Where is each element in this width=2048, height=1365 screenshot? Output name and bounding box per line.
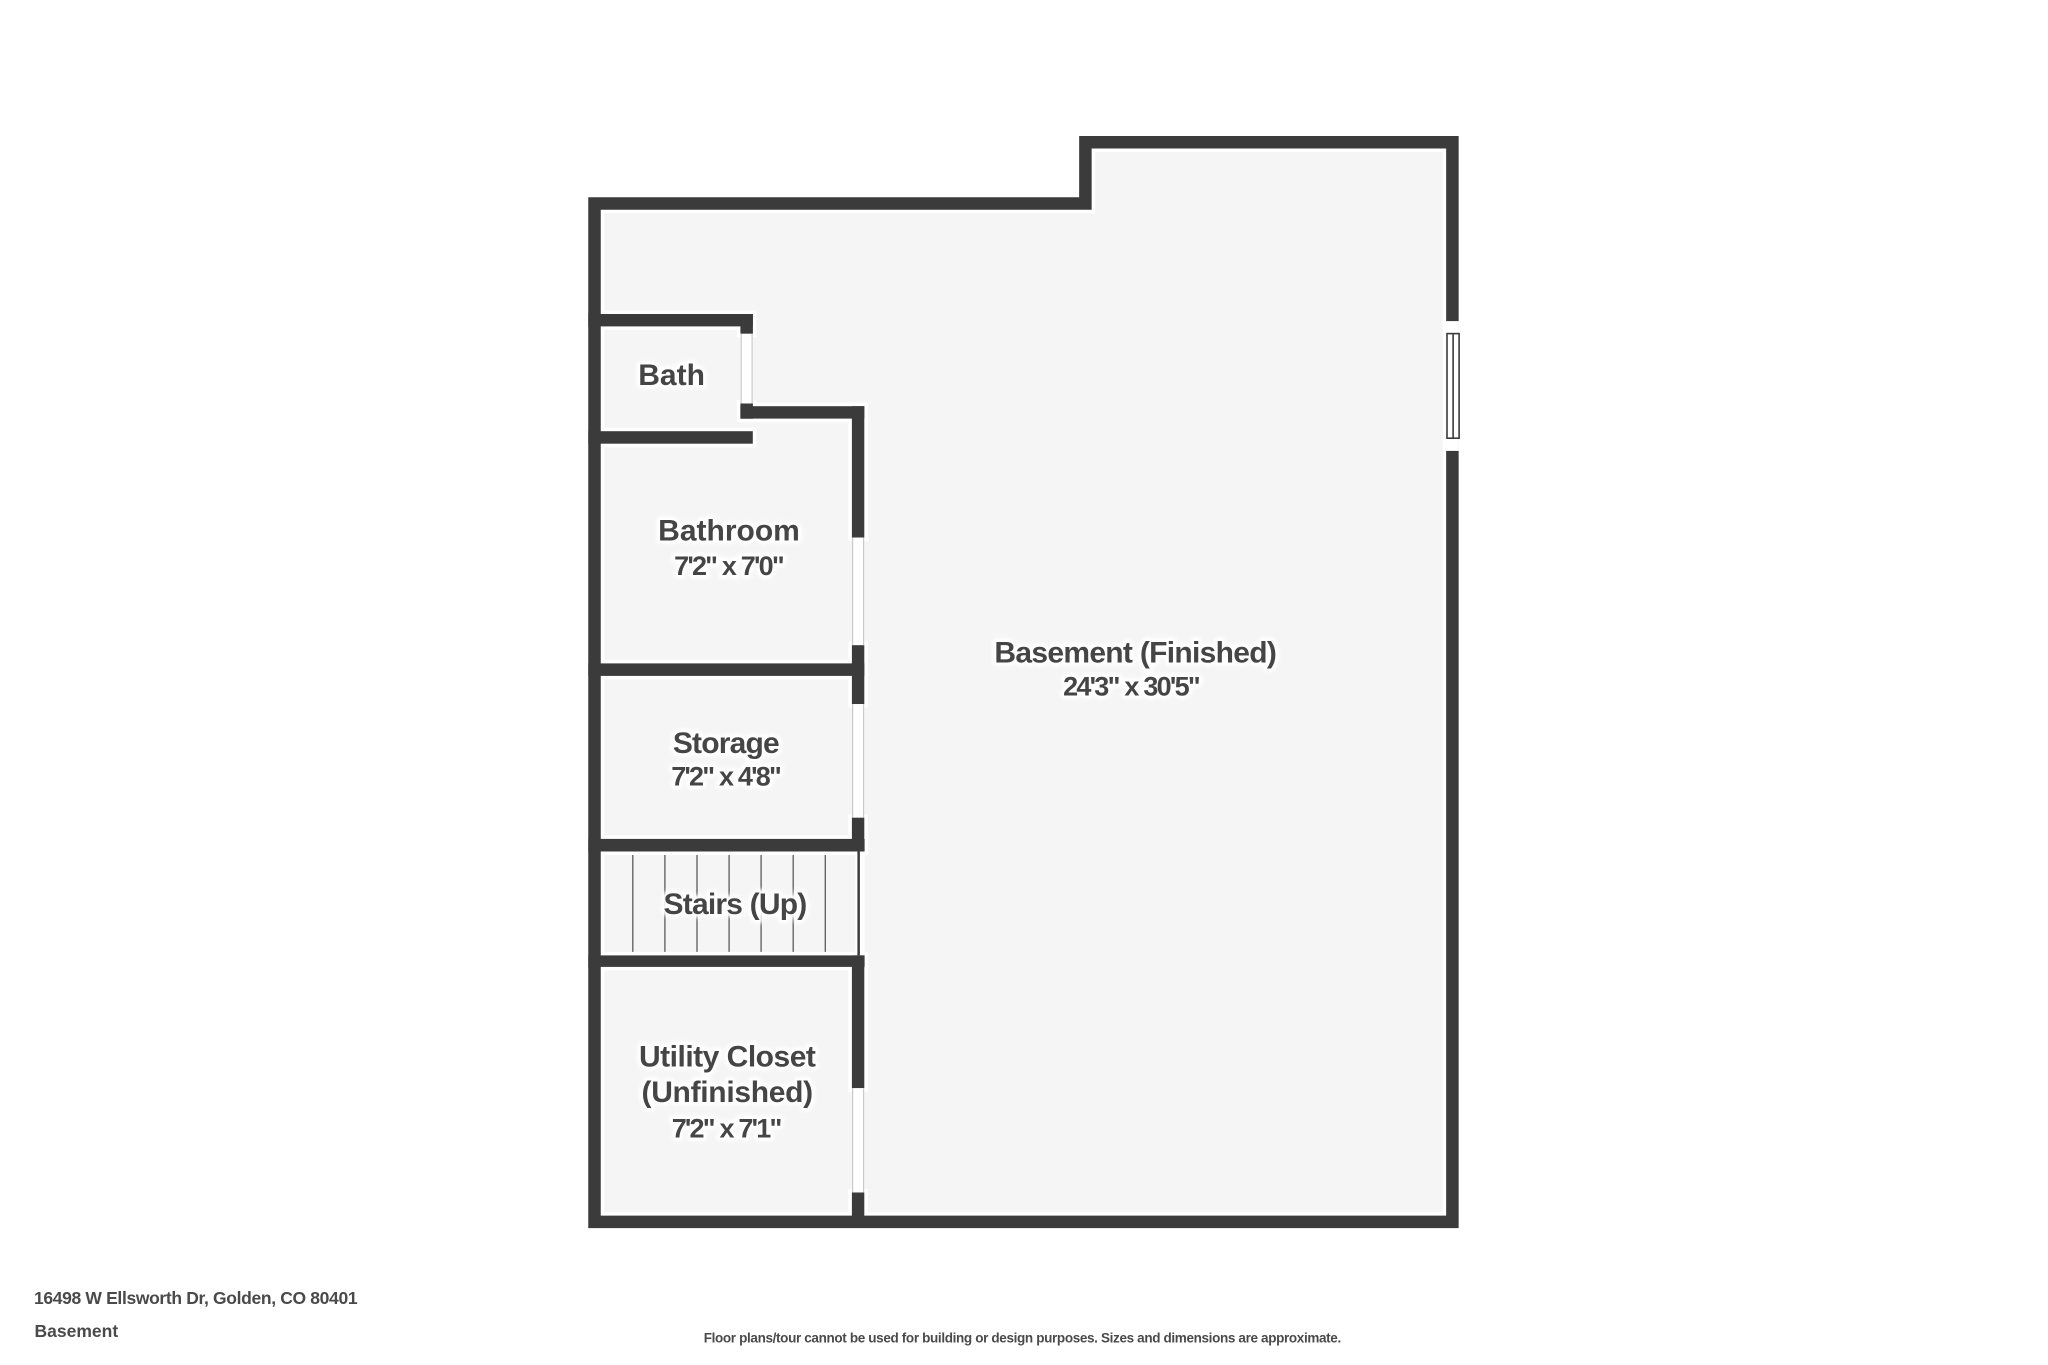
svg-text:24'3" x 30'5": 24'3" x 30'5" xyxy=(1063,672,1200,702)
svg-text:Bath: Bath xyxy=(638,359,705,392)
svg-text:Bathroom: Bathroom xyxy=(658,514,800,547)
svg-text:(Unfinished): (Unfinished) xyxy=(642,1076,813,1109)
svg-text:Storage: Storage xyxy=(673,727,779,760)
svg-text:7'2" x 7'0": 7'2" x 7'0" xyxy=(674,551,784,581)
svg-text:Basement: Basement xyxy=(35,1321,119,1341)
svg-text:7'2" x 4'8": 7'2" x 4'8" xyxy=(671,762,781,792)
svg-text:Basement (Finished): Basement (Finished) xyxy=(994,637,1276,670)
svg-text:Stairs (Up): Stairs (Up) xyxy=(664,888,807,921)
svg-text:Floor plans/tour cannot be use: Floor plans/tour cannot be used for buil… xyxy=(704,1330,1341,1345)
svg-text:Utility Closet: Utility Closet xyxy=(639,1040,816,1073)
svg-text:16498 W Ellsworth Dr, Golden,: 16498 W Ellsworth Dr, Golden, CO 80401 xyxy=(34,1288,358,1308)
svg-text:7'2" x 7'1": 7'2" x 7'1" xyxy=(672,1114,782,1144)
